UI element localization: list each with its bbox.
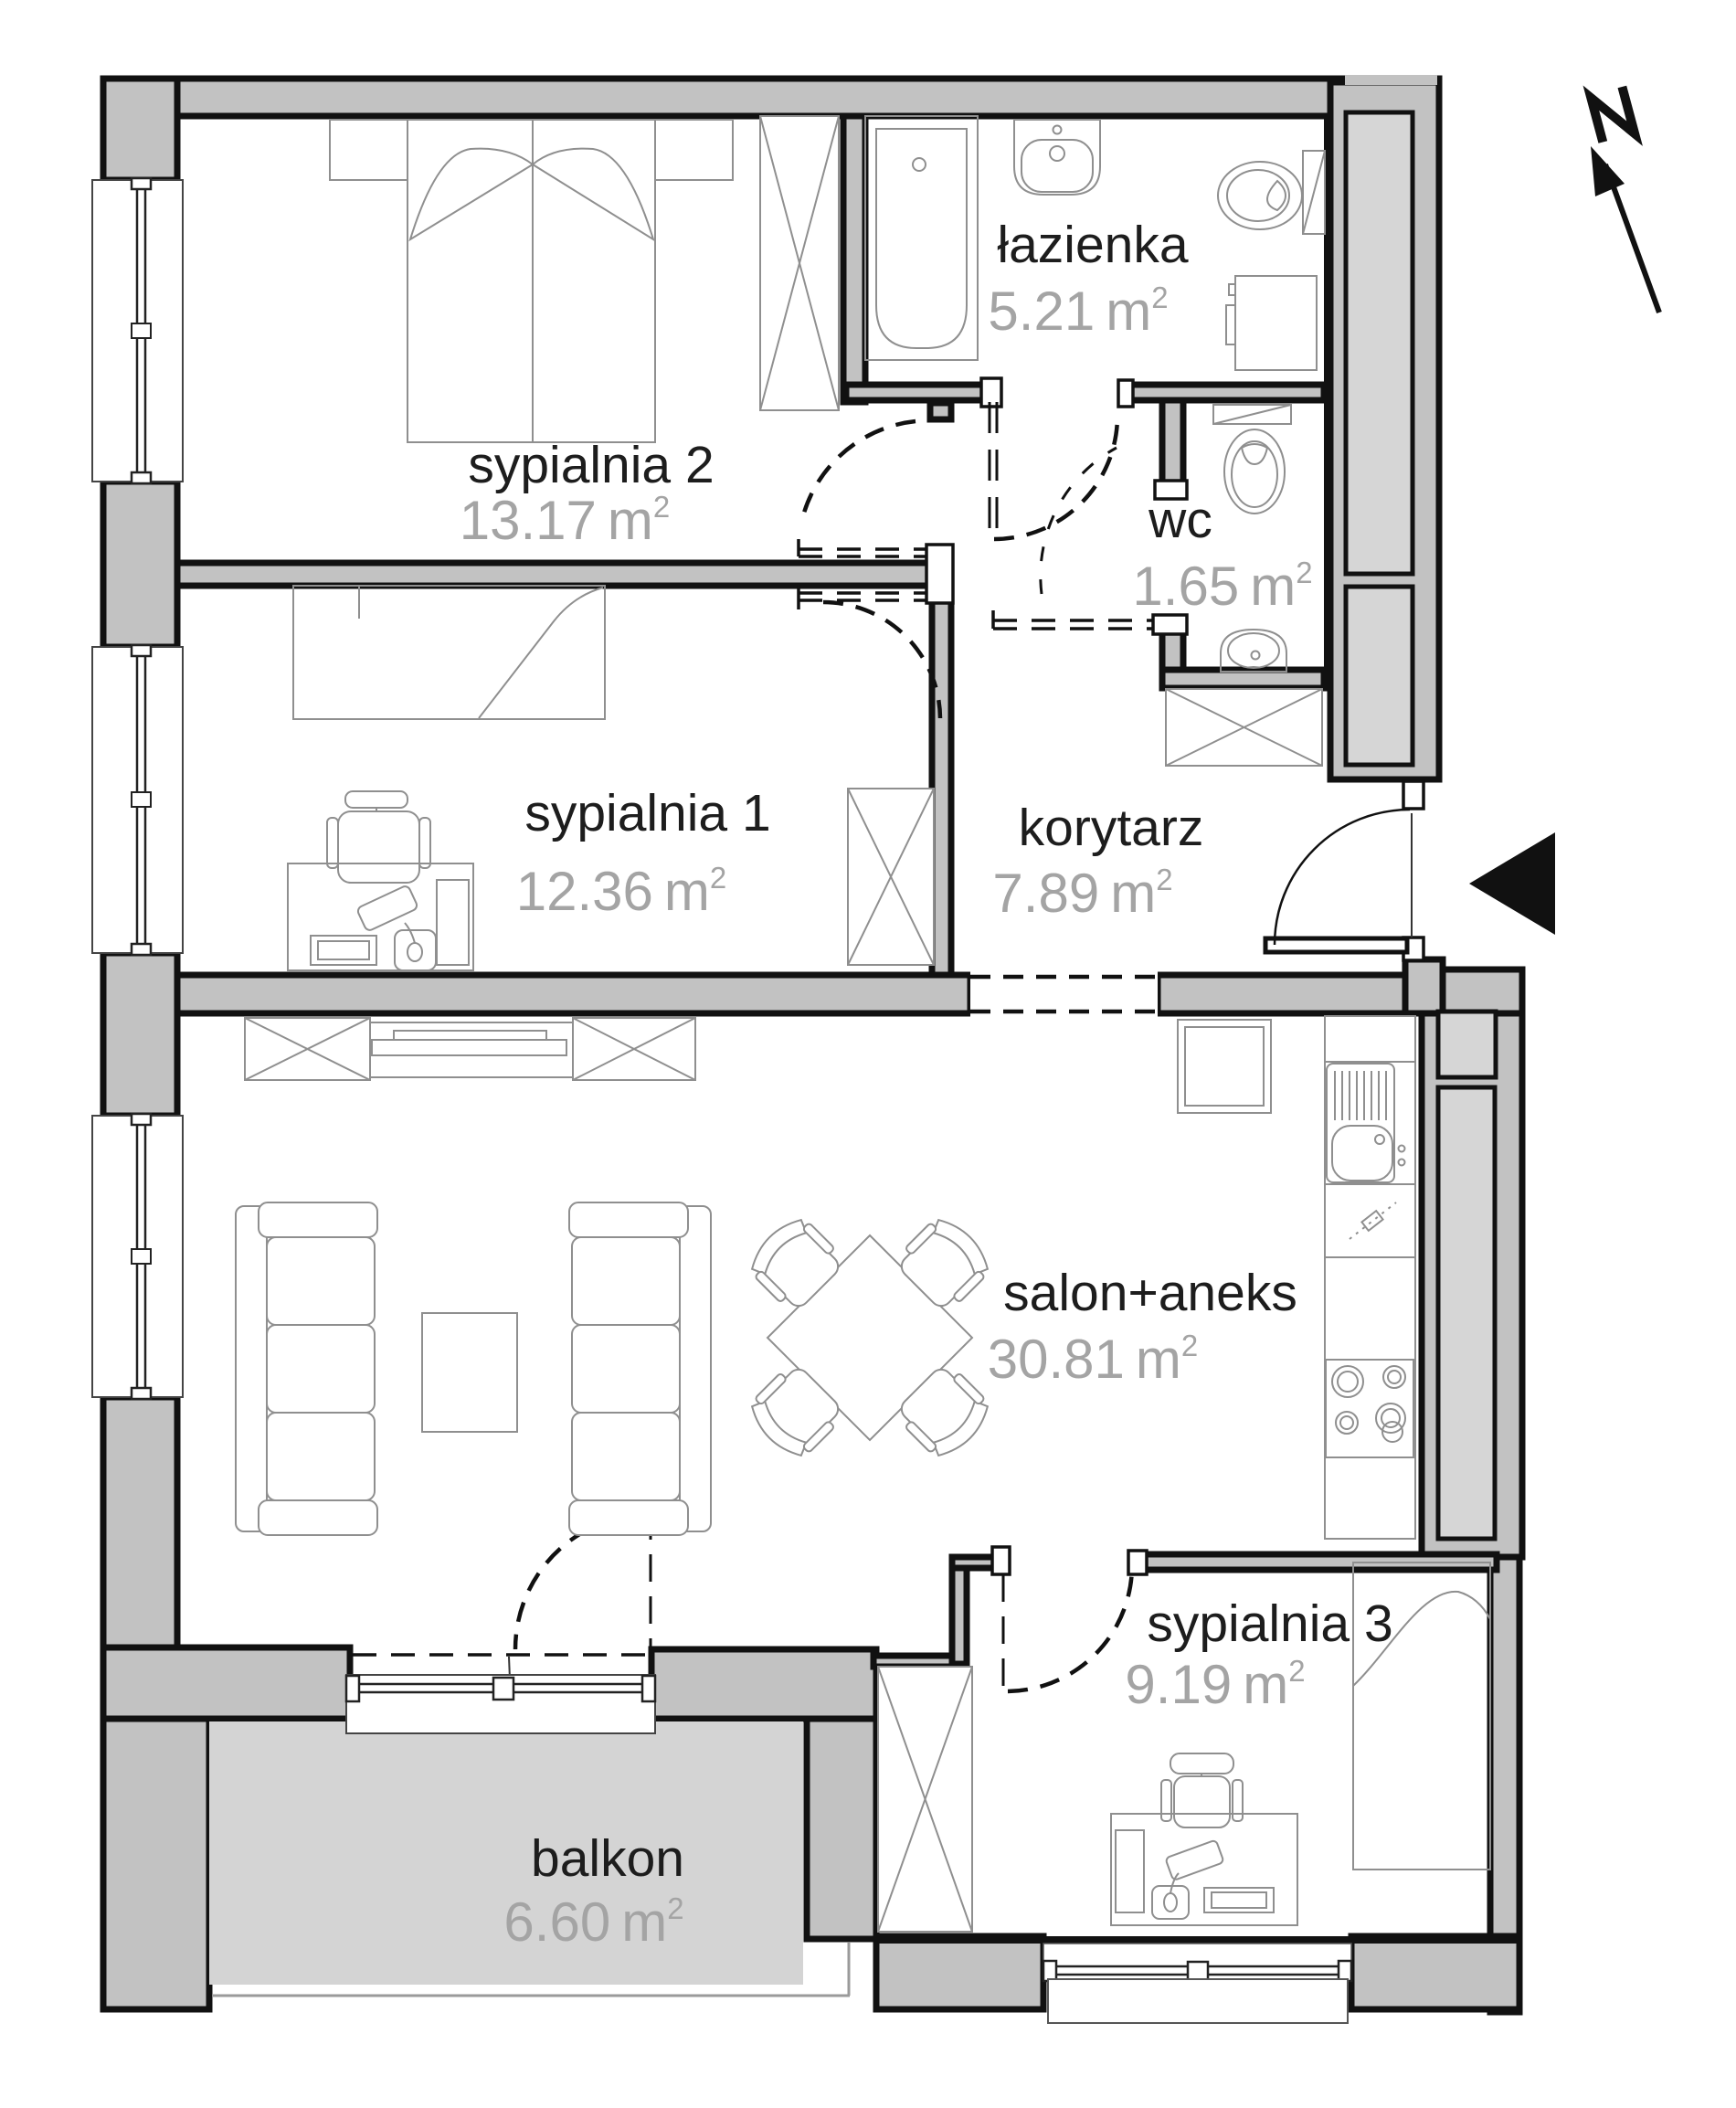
- svg-text:sypialnia 1: sypialnia 1: [524, 784, 770, 842]
- svg-text:sypialnia 3: sypialnia 3: [1147, 1594, 1392, 1653]
- svg-text:balkon: balkon: [531, 1829, 684, 1888]
- svg-text:7.89 m2: 7.89 m2: [992, 863, 1172, 924]
- svg-text:łazienka: łazienka: [997, 216, 1188, 274]
- svg-text:korytarz: korytarz: [1019, 799, 1204, 857]
- svg-text:30.81 m2: 30.81 m2: [988, 1329, 1199, 1390]
- svg-text:wc: wc: [1148, 491, 1212, 549]
- svg-text:13.17 m2: 13.17 m2: [460, 490, 671, 551]
- svg-text:sypialnia 2: sypialnia 2: [468, 436, 714, 494]
- svg-text:1.65 m2: 1.65 m2: [1132, 556, 1312, 617]
- svg-text:9.19 m2: 9.19 m2: [1125, 1654, 1305, 1715]
- svg-text:12.36 m2: 12.36 m2: [516, 861, 727, 922]
- svg-text:6.60 m2: 6.60 m2: [503, 1891, 683, 1953]
- svg-text:salon+aneks: salon+aneks: [1003, 1264, 1297, 1322]
- svg-text:5.21 m2: 5.21 m2: [988, 281, 1168, 342]
